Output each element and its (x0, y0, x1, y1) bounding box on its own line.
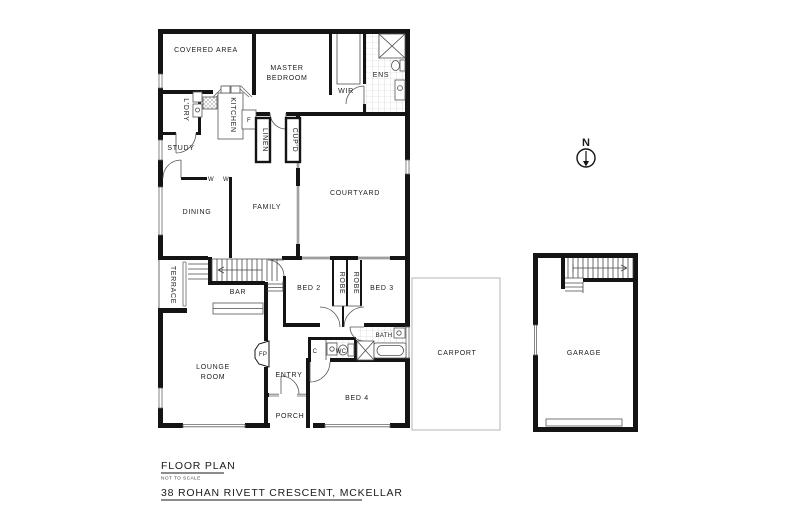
label-kitchen: KITCHEN (229, 97, 236, 133)
label-cupboard: C (313, 349, 318, 355)
label-entry: ENTRY (275, 372, 302, 379)
label-fridge: F (247, 118, 251, 124)
north-label: N (582, 137, 590, 149)
title-block: FLOOR PLAN NOT TO SCALE 38 ROHAN RIVETT … (161, 460, 403, 500)
label-terrace: TERRACE (169, 266, 176, 304)
garage-walls (532, 253, 638, 432)
address: 38 ROHAN RIVETT CRESCENT, MCKELLAR (161, 487, 403, 499)
label-wc: WC (336, 349, 347, 355)
label-family: FAMILY (253, 204, 282, 211)
label-lounge-2: ROOM (201, 374, 226, 381)
label-bed2: BED 2 (297, 285, 321, 292)
laundry-fixtures (193, 92, 202, 117)
north-indicator: N (577, 137, 595, 167)
label-fireplace: FP (259, 352, 267, 358)
bar-counter (213, 303, 263, 314)
label-porch: PORCH (276, 413, 305, 420)
house-stairs (188, 259, 283, 291)
label-courtyard: COURTYARD (330, 190, 380, 197)
label-garage: GARAGE (567, 350, 601, 357)
floor-plan-page: N COVERED AREA MASTER BEDROOM WIR ENS ST… (0, 0, 790, 527)
label-master-bedroom-2: BEDROOM (266, 75, 307, 82)
label-ldry: L'DRY (182, 98, 189, 121)
label-wir: WIR (338, 88, 354, 95)
label-w-marker-2: W (223, 177, 229, 183)
garage-stairs (565, 258, 633, 293)
label-covered-area: COVERED AREA (174, 47, 238, 54)
label-cupd: CUP'D (291, 128, 298, 153)
label-master-bedroom-1: MASTER (270, 65, 303, 72)
label-bar: BAR (230, 289, 247, 296)
label-robe-2: ROBE (352, 272, 359, 295)
label-lounge-1: LOUNGE (196, 364, 230, 371)
label-dining: DINING (183, 209, 212, 216)
label-linen: LINEN (261, 128, 268, 152)
scale-note: NOT TO SCALE (161, 476, 201, 482)
wir-rail (337, 34, 360, 84)
label-robe-1: ROBE (338, 272, 345, 295)
label-ens: ENS (373, 72, 390, 79)
label-bed4: BED 4 (345, 395, 369, 402)
garage-door (546, 419, 622, 426)
floor-plan-drawing: N COVERED AREA MASTER BEDROOM WIR ENS ST… (0, 0, 790, 527)
label-carport: CARPORT (438, 350, 477, 357)
label-w-marker-1: W (208, 177, 214, 183)
plan-title: FLOOR PLAN (161, 460, 236, 472)
label-bath: BATH (376, 333, 393, 339)
label-bed3: BED 3 (370, 285, 394, 292)
label-study: STUDY (167, 145, 194, 152)
